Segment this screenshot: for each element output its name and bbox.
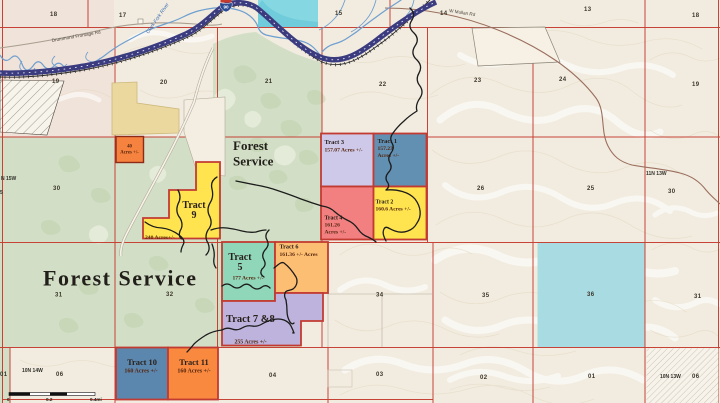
svg-text:17: 17	[119, 13, 127, 19]
svg-text:160 Acres +/-: 160 Acres +/-	[124, 369, 157, 375]
svg-text:177 Acres +/-: 177 Acres +/-	[232, 276, 263, 282]
svg-text:0: 0	[7, 397, 10, 402]
svg-text:22: 22	[379, 82, 387, 88]
svg-text:Service: Service	[233, 154, 274, 169]
svg-text:161.36 +/- Acres: 161.36 +/- Acres	[280, 252, 319, 258]
svg-text:160 Acres +/-: 160 Acres +/-	[177, 369, 210, 375]
svg-text:25: 25	[587, 186, 595, 192]
svg-text:Acres +/-: Acres +/-	[120, 151, 139, 156]
svg-text:Tract 3: Tract 3	[325, 139, 345, 146]
svg-text:Tract 1: Tract 1	[378, 138, 398, 145]
svg-text:14: 14	[440, 11, 448, 17]
svg-text:32: 32	[166, 292, 174, 298]
svg-text:Acres +/-: Acres +/-	[325, 230, 347, 236]
svg-text:240 Acres+/-: 240 Acres+/-	[145, 235, 175, 241]
svg-text:10N 14W: 10N 14W	[22, 368, 43, 374]
svg-text:02: 02	[480, 375, 488, 381]
svg-text:18: 18	[50, 12, 58, 18]
svg-text:0.4mi: 0.4mi	[90, 397, 102, 402]
svg-text:10N 13W: 10N 13W	[660, 374, 681, 380]
svg-text:9: 9	[192, 210, 197, 221]
svg-text:15: 15	[335, 11, 343, 17]
svg-text:30: 30	[53, 186, 61, 192]
svg-text:11N 13W: 11N 13W	[646, 171, 667, 177]
svg-text:Forest Service: Forest Service	[43, 266, 196, 291]
svg-text:30: 30	[668, 189, 676, 195]
svg-text:157.23: 157.23	[378, 146, 394, 152]
svg-text:24: 24	[559, 77, 567, 83]
svg-text:5: 5	[238, 262, 243, 273]
svg-text:36: 36	[587, 292, 595, 298]
svg-text:Tract 4: Tract 4	[325, 216, 343, 222]
svg-text:160.6 Acres +/-: 160.6 Acres +/-	[376, 207, 411, 213]
svg-text:N 15W: N 15W	[1, 176, 17, 182]
svg-text:Tract 10: Tract 10	[127, 358, 157, 367]
svg-text:06: 06	[692, 374, 700, 380]
svg-text:31: 31	[694, 294, 702, 300]
svg-text:255 Acres +/-: 255 Acres +/-	[235, 340, 267, 346]
svg-text:03: 03	[376, 372, 384, 378]
svg-text:90: 90	[223, 5, 229, 10]
svg-text:04: 04	[269, 373, 277, 379]
svg-text:18: 18	[692, 13, 700, 19]
svg-text:157.07 Acres +/-: 157.07 Acres +/-	[325, 148, 363, 154]
svg-text:20: 20	[160, 80, 168, 86]
svg-text:26: 26	[477, 186, 485, 192]
svg-text:19: 19	[692, 82, 700, 88]
svg-text:31: 31	[55, 293, 63, 299]
svg-text:21: 21	[265, 79, 273, 85]
svg-text:13: 13	[584, 7, 592, 13]
svg-text:Tract 11: Tract 11	[179, 358, 208, 367]
svg-text:Tract 2: Tract 2	[376, 200, 394, 206]
svg-text:161.26: 161.26	[325, 223, 341, 229]
svg-text:Forest: Forest	[233, 138, 269, 153]
svg-text:06: 06	[56, 372, 64, 378]
svg-text:01: 01	[0, 372, 8, 378]
svg-text:19: 19	[52, 79, 60, 85]
svg-text:34: 34	[376, 293, 384, 299]
svg-text:0.2: 0.2	[46, 397, 53, 402]
svg-text:23: 23	[474, 78, 482, 84]
svg-text:Tract 7 &8: Tract 7 &8	[226, 314, 275, 325]
svg-text:40: 40	[127, 145, 132, 150]
svg-text:35: 35	[482, 293, 490, 299]
svg-text:5: 5	[0, 190, 3, 196]
svg-text:01: 01	[588, 374, 596, 380]
svg-text:Tract 6: Tract 6	[280, 244, 299, 251]
